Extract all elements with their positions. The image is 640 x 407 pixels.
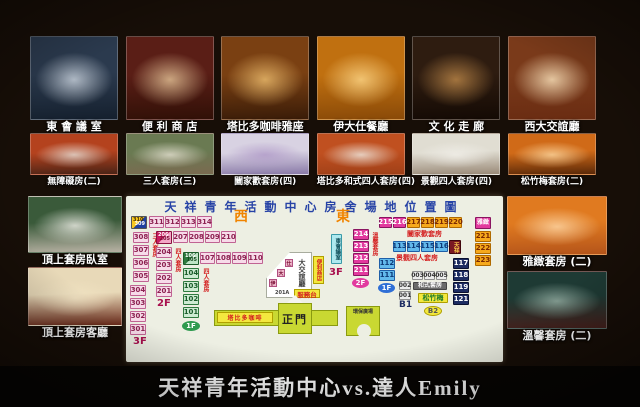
map-112: 112 xyxy=(379,258,395,269)
photo-top-suite-bedroom: 頂上套房臥室 xyxy=(28,196,122,267)
photo-image xyxy=(126,133,214,175)
photo-image xyxy=(221,133,309,175)
photo-caption: 闔家歡套房(四) xyxy=(221,175,309,189)
map-204: 204 xyxy=(156,247,172,258)
photo-caption: 三人套房(三) xyxy=(126,175,214,189)
photo-image xyxy=(412,133,500,175)
map-208: 208 xyxy=(189,231,204,243)
map-東: 東 xyxy=(336,210,350,224)
photo-image xyxy=(507,271,607,329)
photo-tabido-japanese-suite: 塔比多和式四人套房(四) xyxy=(317,133,405,189)
map-lobby-chip: 仕 xyxy=(285,259,293,267)
photo-image xyxy=(28,196,122,253)
map-314: 314 xyxy=(197,216,212,228)
photo-caption: 文 化 走 廊 xyxy=(412,120,500,134)
map-222: 222 xyxy=(475,243,491,254)
map-title: 天祥青年活動中心房舍場地位置圖 xyxy=(126,198,503,215)
map-diag: 106105 xyxy=(183,252,199,265)
map-218: 218 xyxy=(421,217,434,228)
map-雅緻: 雅緻 xyxy=(475,217,491,229)
map-215: 215 xyxy=(379,217,392,228)
map-3F: 3F xyxy=(329,268,343,278)
map-cafe: 塔比多咖啡 xyxy=(217,312,273,323)
map-306: 306 xyxy=(133,258,149,269)
photo-cozy-suite: 溫馨套房 (二) xyxy=(507,271,607,343)
map-113: 113 xyxy=(393,241,406,252)
map-311: 311 xyxy=(149,216,164,228)
map-114: 114 xyxy=(407,241,420,252)
map-216: 216 xyxy=(393,217,406,228)
gate-roof-icon xyxy=(287,295,303,303)
map-115: 115 xyxy=(421,241,434,252)
map-景觀四人套房: 景觀四人套房 xyxy=(396,255,438,262)
map-101: 101 xyxy=(183,307,199,318)
map-221: 221 xyxy=(475,231,491,242)
map-110: 110 xyxy=(248,252,263,264)
map-312: 312 xyxy=(165,216,180,228)
photo-caption: 景觀四人套房(四) xyxy=(412,175,500,189)
photo-family-suite: 闔家歡套房(四) xyxy=(221,133,309,189)
photo-caption: 雅緻套房 (二) xyxy=(507,255,607,269)
photo-idas-restaurant: 伊大仕餐廳 xyxy=(317,36,405,134)
photo-image xyxy=(317,133,405,175)
map-219: 219 xyxy=(435,217,448,228)
photo-elegant-suite: 雅緻套房 (二) xyxy=(507,196,607,269)
photo-caption: 塔比多和式四人套房(四) xyxy=(317,175,405,189)
map-lobby-chip: 大 xyxy=(277,269,285,277)
photo-image xyxy=(317,36,405,120)
map-201: 201 xyxy=(156,286,172,297)
map-214: 214 xyxy=(353,229,369,240)
map-002: 002 xyxy=(399,281,411,290)
map-313: 313 xyxy=(181,216,196,228)
photo-accessible-room: 無障礙房(二) xyxy=(30,133,118,189)
map-308: 308 xyxy=(133,232,149,243)
map-119: 119 xyxy=(453,282,469,293)
site-map: 天祥青年活動中心房舍場地位置圖 310309311312313314西東3083… xyxy=(126,196,503,362)
map-301: 301 xyxy=(130,324,146,335)
map-001: 001 xyxy=(399,291,411,300)
photo-image xyxy=(412,36,500,120)
photo-image xyxy=(30,133,118,175)
photo-tabido-coffee: 塔比多咖啡雅座 xyxy=(221,36,309,134)
photo-caption: 便 利 商 店 xyxy=(126,120,214,134)
photo-caption: 塔比多咖啡雅座 xyxy=(221,120,309,134)
map-203: 203 xyxy=(156,260,172,271)
photo-caption: 溫馨套房 (二) xyxy=(507,329,607,343)
map-lobby-label: 大交誼廳 xyxy=(297,259,307,287)
map-2F: 2F xyxy=(352,278,369,288)
caption-band: 天祥青年活動中心vs.達人Emily xyxy=(0,366,640,407)
map-005: 005 xyxy=(436,271,447,280)
photo-image xyxy=(126,36,214,120)
photo-image xyxy=(508,133,596,175)
photo-image xyxy=(30,36,118,120)
map-B1: B1 xyxy=(399,301,412,310)
map-天祥: 天祥 xyxy=(449,240,461,254)
map-207: 207 xyxy=(173,231,188,243)
map-eco-plaza: 環保廣場 xyxy=(346,306,380,336)
map-116: 116 xyxy=(435,241,448,252)
map-西: 西 xyxy=(234,210,248,224)
photo-pine-bamboo-plum-suite: 松竹梅套房(二) xyxy=(508,133,596,189)
map-111: 111 xyxy=(379,270,395,281)
map-eco-plaza-label: 環保廣場 xyxy=(353,309,373,315)
map-104: 104 xyxy=(183,268,199,279)
map-松竹梅: 松竹梅 xyxy=(418,293,448,303)
map-107: 107 xyxy=(200,252,215,264)
map-209: 209 xyxy=(205,231,220,243)
photo-caption: 西大交誼廳 xyxy=(508,120,596,134)
map-1F: 1F xyxy=(182,321,200,331)
map-117: 117 xyxy=(453,258,469,269)
map-diag: 206205 xyxy=(156,231,172,244)
map-1F: 1F xyxy=(378,283,395,293)
photo-triple-suite: 三人套房(三) xyxy=(126,133,214,189)
map-213: 213 xyxy=(353,241,369,252)
photo-image xyxy=(221,36,309,120)
photo-image xyxy=(508,36,596,120)
photo-culture-corridor: 文 化 走 廊 xyxy=(412,36,500,134)
map-212: 212 xyxy=(353,253,369,264)
photo-caption: 東 會 議 室 xyxy=(30,120,118,134)
map-223: 223 xyxy=(475,255,491,266)
map-211: 211 xyxy=(353,265,369,276)
map-convenience-store: 便利商店 xyxy=(313,256,324,284)
map-003: 003 xyxy=(412,271,423,280)
plaza-circle-icon xyxy=(357,324,371,338)
photo-caption-text: 天祥青年活動中心vs.達人Emily xyxy=(158,372,482,402)
map-和式套房: 和式套房 xyxy=(413,282,447,290)
photo-top-suite-livingroom: 頂上套房客廳 xyxy=(28,267,122,340)
map-302: 302 xyxy=(130,311,146,322)
photo-caption: 頂上套房客廳 xyxy=(28,326,122,340)
map-B2: B2 xyxy=(424,306,442,316)
map-118: 118 xyxy=(453,270,469,281)
map-004: 004 xyxy=(424,271,435,280)
map-溫馨套房: 溫馨套房 xyxy=(371,232,377,268)
map-四人套房: 四人套房 xyxy=(174,248,180,292)
map-304: 304 xyxy=(130,285,146,296)
map-四人套房: 四人套房 xyxy=(202,268,208,312)
map-diag: 310309 xyxy=(131,216,147,229)
map-202: 202 xyxy=(156,273,172,284)
map-217: 217 xyxy=(407,217,420,228)
photo-caption: 松竹梅套房(二) xyxy=(508,175,596,189)
map-108: 108 xyxy=(216,252,231,264)
photo-caption: 頂上套房臥室 xyxy=(28,253,122,267)
map-210: 210 xyxy=(221,231,236,243)
map-303: 303 xyxy=(130,298,146,309)
map-109: 109 xyxy=(232,252,247,264)
map-3F: 3F xyxy=(133,337,147,347)
map-305: 305 xyxy=(133,271,149,282)
map-2F: 2F xyxy=(157,299,171,309)
map-307: 307 xyxy=(133,245,149,256)
map-220: 220 xyxy=(449,217,462,228)
photo-east-conference-room: 東 會 議 室 xyxy=(30,36,118,134)
photo-image xyxy=(28,267,122,326)
photo-image xyxy=(507,196,607,255)
info-board: 東 會 議 室便 利 商 店塔比多咖啡雅座伊大仕餐廳文 化 走 廊西大交誼廳無障… xyxy=(0,0,640,366)
map-main-gate: 正門 xyxy=(278,303,312,334)
photo-caption: 無障礙房(二) xyxy=(30,175,118,189)
map-東會議室: 東會議室 xyxy=(331,234,342,264)
map-121: 121 xyxy=(453,294,469,305)
photo-convenience-store: 便 利 商 店 xyxy=(126,36,214,134)
map-lobby-chip: 伊 xyxy=(269,279,277,287)
map-103: 103 xyxy=(183,281,199,292)
photo-caption: 伊大仕餐廳 xyxy=(317,120,405,134)
photo-scenic-quad-suite: 景觀四人套房(四) xyxy=(412,133,500,189)
map-102: 102 xyxy=(183,294,199,305)
photo-of-info-board: 東 會 議 室便 利 商 店塔比多咖啡雅座伊大仕餐廳文 化 走 廊西大交誼廳無障… xyxy=(0,0,640,407)
map-闔家歡套房: 闔家歡套房 xyxy=(407,231,442,238)
photo-west-lounge: 西大交誼廳 xyxy=(508,36,596,134)
